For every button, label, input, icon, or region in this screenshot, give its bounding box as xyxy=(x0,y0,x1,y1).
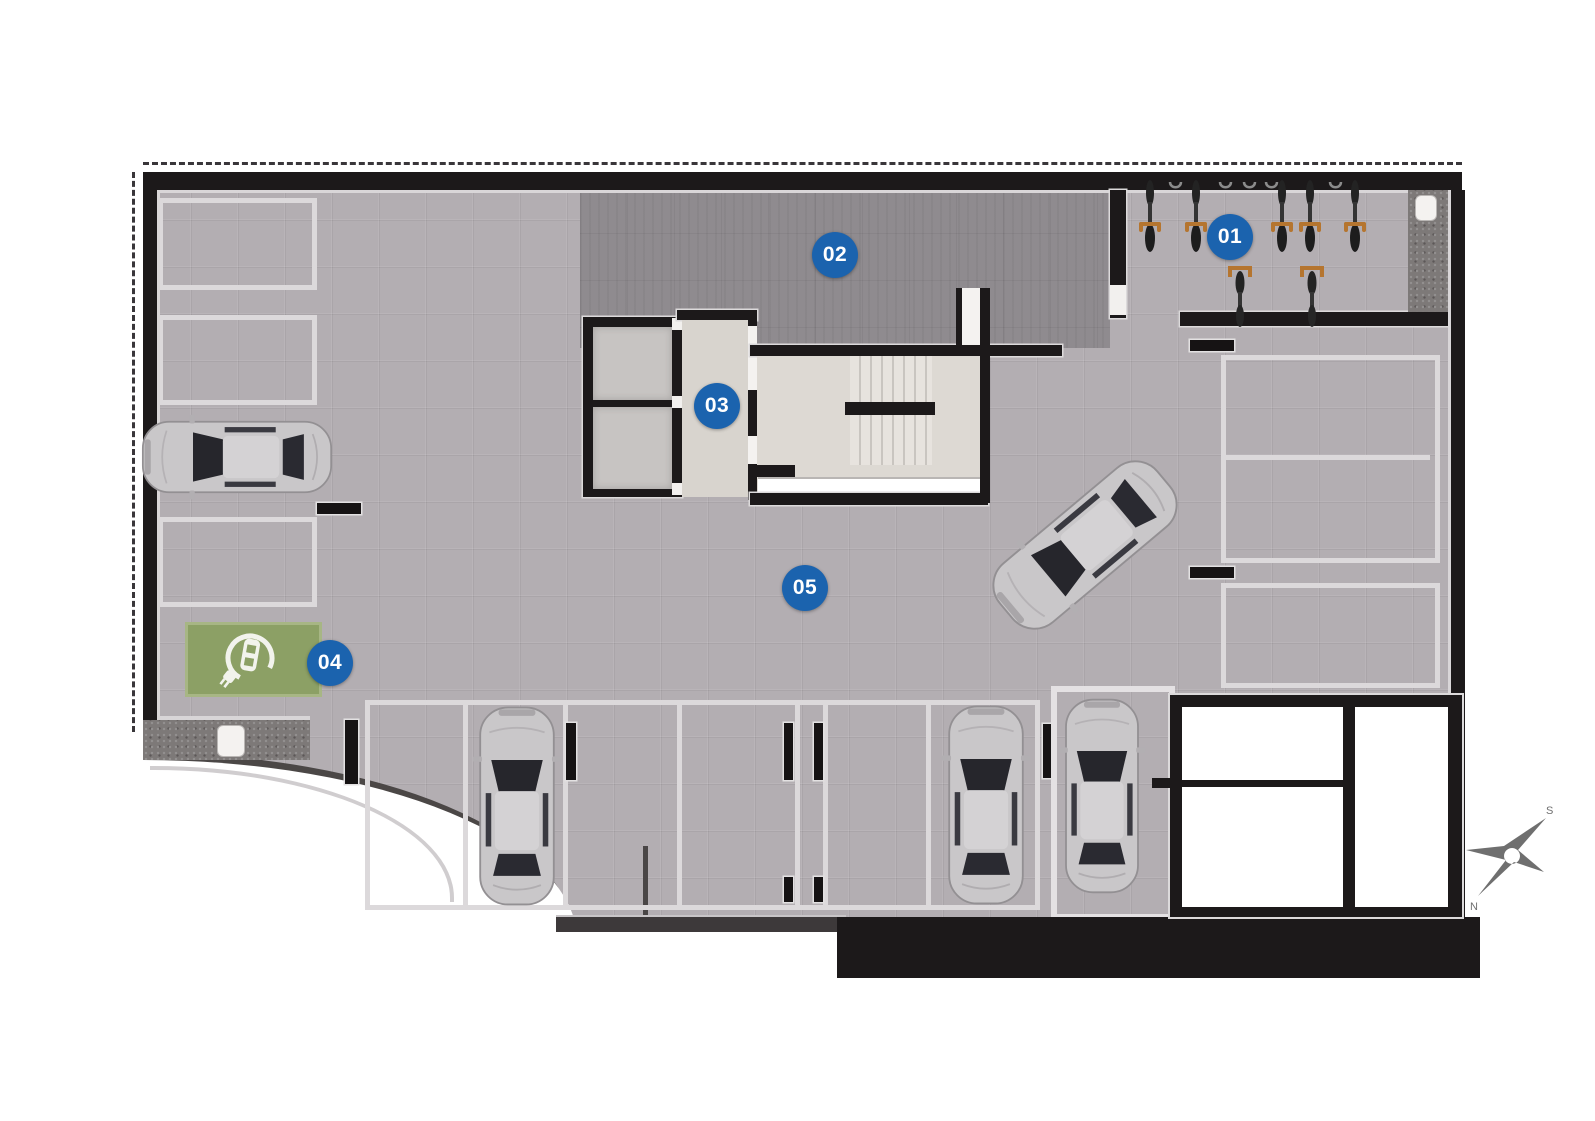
marker-03[interactable]: 03 xyxy=(694,383,740,429)
marker-01[interactable]: 01 xyxy=(1207,214,1253,260)
marker-04[interactable]: 04 xyxy=(307,640,353,686)
storage-room xyxy=(1355,707,1448,907)
car-icon xyxy=(1057,696,1147,896)
elevator-door-notch xyxy=(672,396,682,408)
wall-bottom-right-band xyxy=(837,917,1480,978)
parking-spot xyxy=(158,315,317,405)
spot-line xyxy=(795,702,800,908)
storage-room xyxy=(1182,707,1343,780)
bike-hook-icon xyxy=(1330,182,1341,187)
elevator-shaft xyxy=(593,407,672,489)
bike-hook-icon xyxy=(1266,182,1277,187)
column-pillar xyxy=(566,723,576,780)
compass-rose-icon: S N xyxy=(1462,798,1566,914)
lobby-door-gap xyxy=(748,326,757,390)
compass-south-label: S xyxy=(1546,805,1553,817)
bike-icon xyxy=(1185,180,1207,252)
wall-stair-bottom xyxy=(750,493,988,505)
car-icon xyxy=(940,700,1032,910)
wall-stub xyxy=(1152,778,1182,788)
spot-line xyxy=(463,702,468,908)
car-icon xyxy=(139,413,335,501)
wall-stair-right xyxy=(980,288,990,503)
ev-charging-icon xyxy=(218,627,282,691)
bike-icon xyxy=(1299,180,1321,252)
column-pillar xyxy=(1190,340,1234,351)
parking-spot xyxy=(1221,583,1440,688)
elevator-shaft xyxy=(593,327,672,400)
column-pillar xyxy=(784,877,793,902)
spot-divider-line xyxy=(1226,455,1430,460)
parking-spot xyxy=(158,517,317,607)
stair-door-gap xyxy=(962,288,980,345)
boundary-dashed-line-top xyxy=(143,162,1462,165)
wall-bottom-left-segment xyxy=(556,915,846,932)
spot-line xyxy=(365,702,370,908)
driveway-gate-line xyxy=(643,846,648,926)
spot-line xyxy=(823,702,828,908)
bike-storage-room xyxy=(1126,176,1448,328)
bike-hook-icon xyxy=(1244,182,1255,187)
column-pillar xyxy=(317,503,361,514)
compass-north-label: N xyxy=(1470,901,1478,913)
stair-flight-upper xyxy=(850,356,932,402)
floor-plan: 01 02 03 04 05 S N xyxy=(0,0,1595,1121)
spot-line xyxy=(926,702,931,908)
stair-flight-lower xyxy=(850,415,932,465)
wall-stair-top xyxy=(750,345,1062,356)
wall-stair-stub xyxy=(757,465,795,477)
marker-02[interactable]: 02 xyxy=(812,232,858,278)
bike-room-door-icon xyxy=(1110,285,1126,315)
lobby-door-gap xyxy=(748,436,757,464)
spot-line xyxy=(677,702,682,908)
bike-hook-icon xyxy=(1170,182,1181,187)
bike-hook-icon xyxy=(1220,182,1231,187)
column-pillar xyxy=(784,723,793,780)
storage-room xyxy=(1182,787,1343,907)
column-pillar xyxy=(814,723,823,780)
spot-line xyxy=(1035,702,1040,908)
bike-icon xyxy=(1271,180,1293,252)
marker-05[interactable]: 05 xyxy=(782,565,828,611)
parking-spot xyxy=(158,198,317,290)
bike-icon xyxy=(1228,266,1252,327)
stair-corridor-strip xyxy=(758,477,980,493)
stair-landing-bar xyxy=(845,402,935,415)
entrance-door-icon xyxy=(218,726,244,756)
elevator-door-notch xyxy=(672,483,682,495)
column-pillar xyxy=(1043,724,1051,778)
bike-icon xyxy=(1344,180,1366,252)
boundary-dashed-line-left xyxy=(132,172,135,732)
column-pillar xyxy=(814,877,823,902)
bike-icon xyxy=(1139,180,1161,252)
column-pillar xyxy=(345,720,358,784)
column-pillar xyxy=(1190,567,1234,578)
bike-icon xyxy=(1300,266,1324,327)
wall-lobby-top xyxy=(677,310,757,320)
car-icon xyxy=(471,701,563,911)
